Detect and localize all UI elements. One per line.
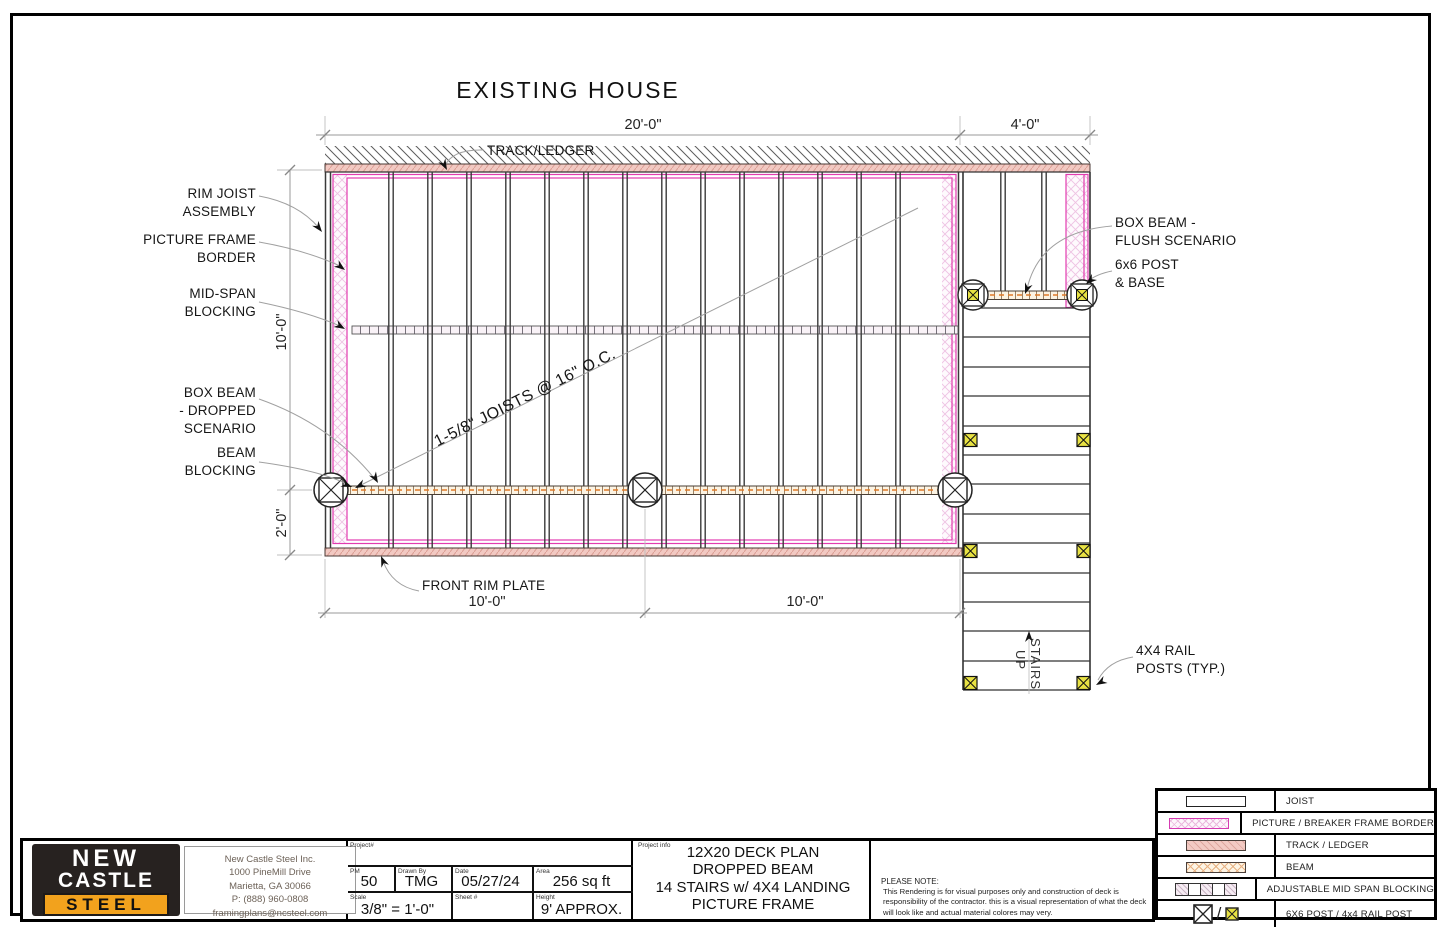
legend-row-blocking: ADJUSTABLE MID SPAN BLOCKING [1158,877,1434,899]
date-value: 05/27/24 [453,873,528,890]
legend-label: TRACK / LEDGER [1276,835,1434,855]
legend-label: 6X6 POST / 4x4 RAIL POST [1276,901,1434,927]
dim-left-upper: 10'-0" [274,314,290,351]
label-stairs-up: UP [1013,650,1028,670]
label-flush-beam-2: FLUSH SCENARIO [1115,233,1236,248]
sheet-label: Sheet # [455,894,477,901]
company-street: 1000 PineMill Drive [185,866,355,879]
label-stairs: STAIRS [1028,638,1043,690]
company-email: framingplans@ncsteel.com [185,907,355,920]
scale-value: 3/8" = 1'-0" [348,901,447,918]
drawn-by-value: TMG [396,873,447,890]
label-rail-posts-2: POSTS (TYP.) [1136,661,1225,676]
note-heading: PLEASE NOTE: [881,877,939,886]
rail-post-icon [964,434,977,447]
label-picture-frame-2: BORDER [197,250,256,265]
track-ledger-band [325,146,1090,172]
project-number-label: Project# [350,842,374,849]
stair-treads [963,308,1090,690]
dim-left-lower: 2'-0" [274,509,290,538]
label-beam-blocking-2: BLOCKING [185,463,256,478]
label-6x6-post-1: 6x6 POST [1115,257,1179,272]
label-boxbeam-1: BOX BEAM [184,385,256,400]
front-rim-plate [325,548,962,556]
dim-bottom-left: 10'-0" [469,594,506,610]
project-info-line: DROPPED BEAM [635,861,871,878]
logo-text-steel: STEEL [43,893,169,916]
label-joist-note: 1-5/8" JOISTS @ 16" O.C. [432,346,619,451]
label-boxbeam-3: SCENARIO [184,421,256,436]
legend-row-beam: BEAM [1158,855,1434,877]
existing-house-title: EXISTING HOUSE [456,77,680,103]
rail-post-icon [1077,677,1090,690]
logo-text-new: NEW [72,847,140,871]
rail-post-icon [1077,434,1090,447]
rail-post-swatch-icon [1225,907,1239,921]
project-table: Project# PM 50 Drawn By TMG Date 05/27/2… [348,841,633,919]
rail-post-icon [1077,545,1090,558]
pm-value: 50 [348,873,390,890]
legend-row-picture-frame: PICTURE / BREAKER FRAME BORDER [1158,811,1434,833]
joist-swatch-icon [1186,796,1246,807]
post-6x6-swatch-icon [1193,904,1213,924]
leader-arrows [312,158,1107,688]
company-logo: NEW CASTLE STEEL [32,844,180,916]
post-6x6-icon [938,473,972,507]
logo-text-castle: CASTLE [58,870,154,891]
label-beam-blocking-1: BEAM [217,445,256,460]
project-info-line: PICTURE FRAME [635,896,871,913]
post-6x6-base-icon [958,280,988,310]
note-body: This Rendering is for visual purposes on… [883,887,1147,918]
label-boxbeam-2: - DROPPED [179,403,256,418]
post-6x6-base-icon [1067,280,1097,310]
slash-separator: / [1217,904,1222,924]
label-midspan-2: BLOCKING [185,304,256,319]
dimension-lines [290,135,1098,613]
height-label: Height [536,894,555,901]
company-cell: NEW CASTLE STEEL New Castle Steel Inc. 1… [23,841,346,919]
landing-joists [1001,172,1046,291]
legend: JOIST PICTURE / BREAKER FRAME BORDER TRA… [1155,788,1437,920]
mid-span-blocking-band [352,326,958,334]
legend-row-joist: JOIST [1158,791,1434,811]
scale-label: Scale [350,894,366,901]
label-flush-beam-1: BOX BEAM - [1115,215,1196,230]
area-value: 256 sq ft [534,873,629,890]
blocking-swatch-icon [1175,883,1237,896]
beam-swatch-icon [1186,862,1246,873]
legend-row-track-ledger: TRACK / LEDGER [1158,833,1434,855]
label-rail-posts-1: 4X4 RAIL [1136,643,1196,658]
label-picture-frame-1: PICTURE FRAME [143,232,256,247]
dim-top-landing: 4'-0" [1011,117,1040,133]
legend-label: PICTURE / BREAKER FRAME BORDER [1242,813,1434,833]
title-block: NEW CASTLE STEEL New Castle Steel Inc. 1… [20,838,1155,922]
legend-label: BEAM [1276,857,1434,877]
rail-post-icon [964,545,977,558]
post-6x6-icon [628,473,662,507]
company-city: Marietta, GA 30066 [185,880,355,893]
picture-frame-swatch-icon [1169,818,1229,829]
project-info-line: 14 STAIRS w/ 4X4 LANDING [635,879,871,896]
height-value: 9' APPROX. [534,901,629,918]
rail-post-icon [964,677,977,690]
post-6x6-icon [314,473,348,507]
drawing-sheet: 20'-0" 4'-0" 10'-0" 2'-0" 10'-0" 10'-0" [0,0,1445,935]
dim-bottom-right: 10'-0" [787,594,824,610]
label-rim-joist-2: ASSEMBLY [183,204,256,219]
track-ledger-swatch-icon [1186,840,1246,851]
company-phone: P: (888) 960-0808 [185,893,355,906]
label-6x6-post-2: & BASE [1115,275,1165,290]
leader-lines [259,150,1133,694]
label-front-rim-plate: FRONT RIM PLATE [422,578,545,593]
legend-label: JOIST [1276,791,1434,811]
legend-row-posts: / 6X6 POST / 4x4 RAIL POST [1158,899,1434,927]
project-info-label: Project info [638,842,671,849]
note-cell: PLEASE NOTE: This Rendering is for visua… [873,841,1152,919]
label-rim-joist-1: RIM JOIST [187,186,256,201]
project-info-cell: Project info 12X20 DECK PLAN DROPPED BEA… [635,841,871,919]
label-midspan-1: MID-SPAN [189,286,256,301]
company-name: New Castle Steel Inc. [185,853,355,866]
company-address: New Castle Steel Inc. 1000 PineMill Driv… [184,846,356,914]
label-track-ledger: TRACK/LEDGER [487,143,594,158]
dim-top-main: 20'-0" [625,117,662,133]
legend-label: ADJUSTABLE MID SPAN BLOCKING [1257,879,1434,899]
